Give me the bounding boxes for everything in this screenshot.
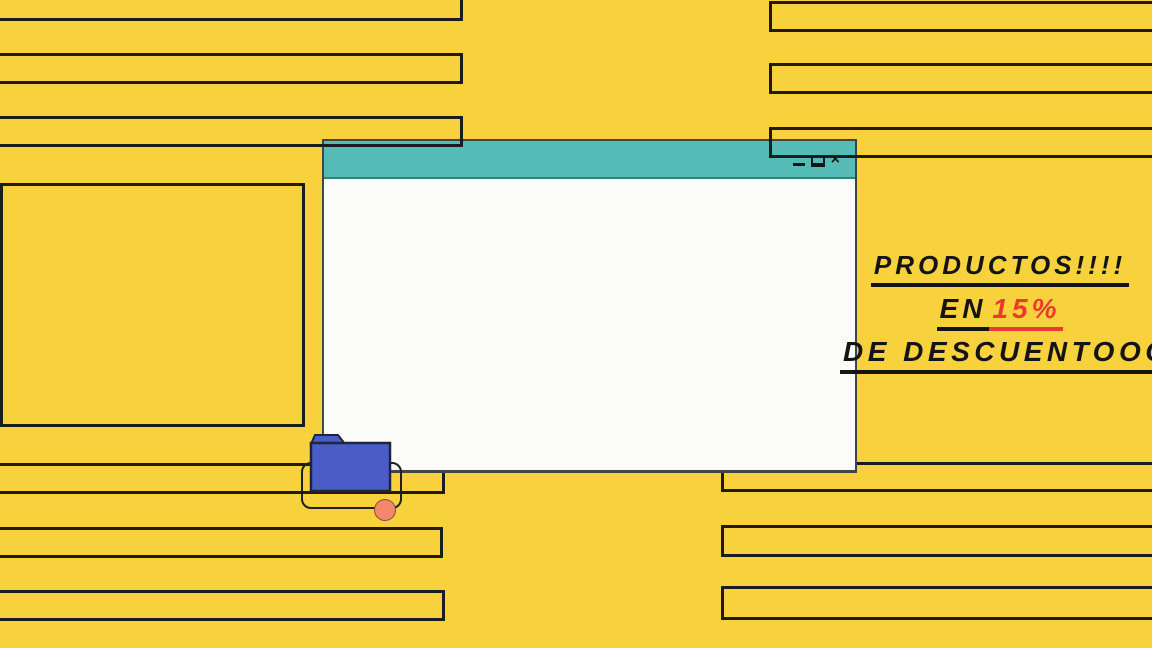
promo-line-2: EN15% <box>840 293 1152 331</box>
stripe-bottom-left-2 <box>0 527 443 558</box>
promo-discount-value: 15% <box>989 293 1063 331</box>
left-outline-rect <box>0 183 305 427</box>
promo-canvas: × PRODUCTOS!!!! EN15% DE DESCUENTOOO <box>0 0 1152 648</box>
promo-text-block: PRODUCTOS!!!! EN15% DE DESCUENTOOO <box>840 250 1152 374</box>
promo-line2-prefix: EN <box>937 293 990 331</box>
minimize-icon[interactable] <box>793 163 805 166</box>
stripe-top-right-3 <box>769 127 1152 158</box>
promo-line-1: PRODUCTOS!!!! <box>840 250 1152 287</box>
stripe-top-right-1 <box>769 1 1152 32</box>
promo-line-3: DE DESCUENTOOO <box>840 336 1152 374</box>
stripe-top-left-3 <box>0 116 463 147</box>
stripe-bottom-left-3 <box>0 590 445 621</box>
stripe-bottom-right-2 <box>721 525 1152 557</box>
stripe-top-right-2 <box>769 63 1152 94</box>
folder-icon[interactable] <box>308 432 394 499</box>
app-window: × <box>322 139 857 473</box>
orange-dot <box>374 499 396 521</box>
stripe-top-left-2 <box>0 53 463 84</box>
stripe-top-left-1 <box>0 0 463 21</box>
stripe-bottom-right-3 <box>721 586 1152 620</box>
